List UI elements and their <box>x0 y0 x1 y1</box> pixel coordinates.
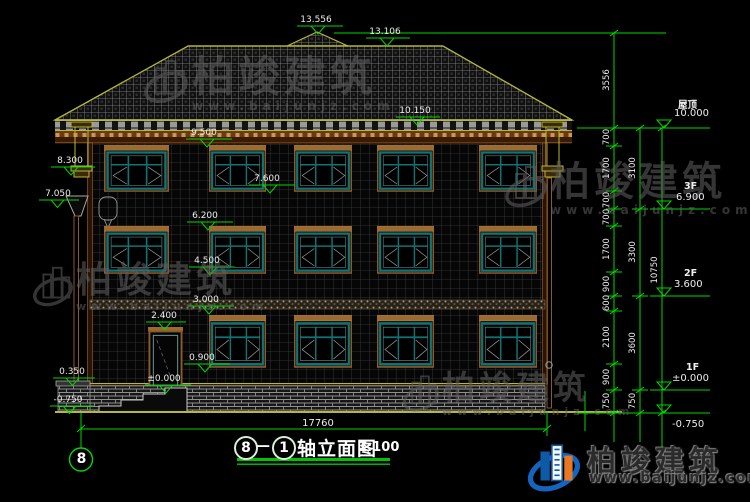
dim-middle-2: 3600 <box>628 332 638 354</box>
dim-inner-4: 700 <box>602 209 612 225</box>
cad-elevation-screenshot: 柏竣建筑 www.baijunjz.com 柏竣建筑 www.baijunjz.… <box>0 0 750 502</box>
dim-inner-6: 900 <box>602 276 612 292</box>
title-axis-to-bubble: 1 <box>272 436 296 460</box>
belt-course <box>90 300 545 309</box>
right-level-2f-value: 3.600 <box>674 279 703 290</box>
title-axis-dash: — <box>256 438 270 454</box>
roof <box>55 32 572 120</box>
dim-inner-1: 700 <box>602 129 612 145</box>
title-axis-from-bubble: 8 <box>234 436 258 460</box>
level-label-peak: 13.556 <box>294 15 338 25</box>
level-label-door-head: 2.400 <box>144 311 184 321</box>
level-label-f3-head: 9.500 <box>184 128 224 138</box>
level-label-left-ground: -0.750 <box>46 395 90 405</box>
right-level-base-value: -0.750 <box>672 419 704 430</box>
dim-overall-height: 10750 <box>650 256 660 283</box>
dim-inner-9: 900 <box>602 369 612 385</box>
dim-middle-3: 750 <box>628 393 638 409</box>
level-label-left-ledge: 0.350 <box>51 367 93 377</box>
downspout-right <box>546 178 552 408</box>
drawing-scale: 1:100 <box>358 440 399 455</box>
dim-middle-0: 3100 <box>628 157 638 179</box>
dim-middle-1: 3300 <box>628 241 638 263</box>
axis-bubble-8: 8 <box>70 448 93 471</box>
dim-inner-7: 600 <box>602 295 612 311</box>
level-label-left-funnel: 7.050 <box>37 189 79 199</box>
dim-inner-3: 700 <box>602 192 612 208</box>
dim-inner-0: 3556 <box>602 69 612 91</box>
dim-inner-5: 1700 <box>602 238 612 260</box>
cornice <box>55 121 572 143</box>
right-level-1f-name: 1F <box>686 362 699 373</box>
level-label-zero: ±0.000 <box>141 374 187 384</box>
level-label-f2-sill: 4.500 <box>187 256 227 266</box>
right-level-1f-value: ±0.000 <box>672 373 709 384</box>
dim-overall-width: 17760 <box>296 419 340 429</box>
level-label-eave: 10.150 <box>393 106 437 116</box>
dim-inner-10: 750 <box>602 393 612 409</box>
level-label-f1-sill: 0.900 <box>182 353 222 363</box>
right-level-roof-value: 10.000 <box>674 108 709 119</box>
level-label-f1-head: 3.000 <box>186 295 226 305</box>
footer-brand-url: www.baijunjz.com <box>589 470 750 486</box>
right-level-3f-name: 3F <box>684 181 697 192</box>
level-label-f3-sill: 7.600 <box>247 174 287 184</box>
level-label-ridge: 13.106 <box>363 27 407 37</box>
brand-logo-icon <box>527 436 585 496</box>
level-label-f2-head: 6.200 <box>185 211 225 221</box>
dim-inner-8: 2100 <box>602 326 612 348</box>
level-label-left-capital: 8.300 <box>49 156 91 166</box>
dim-inner-2: 1700 <box>602 157 612 179</box>
right-level-2f-name: 2F <box>684 268 697 279</box>
right-level-3f-value: 6.900 <box>676 192 705 203</box>
footer-brand-logo: 柏竣建筑 www.baijunjz.com <box>527 436 750 500</box>
